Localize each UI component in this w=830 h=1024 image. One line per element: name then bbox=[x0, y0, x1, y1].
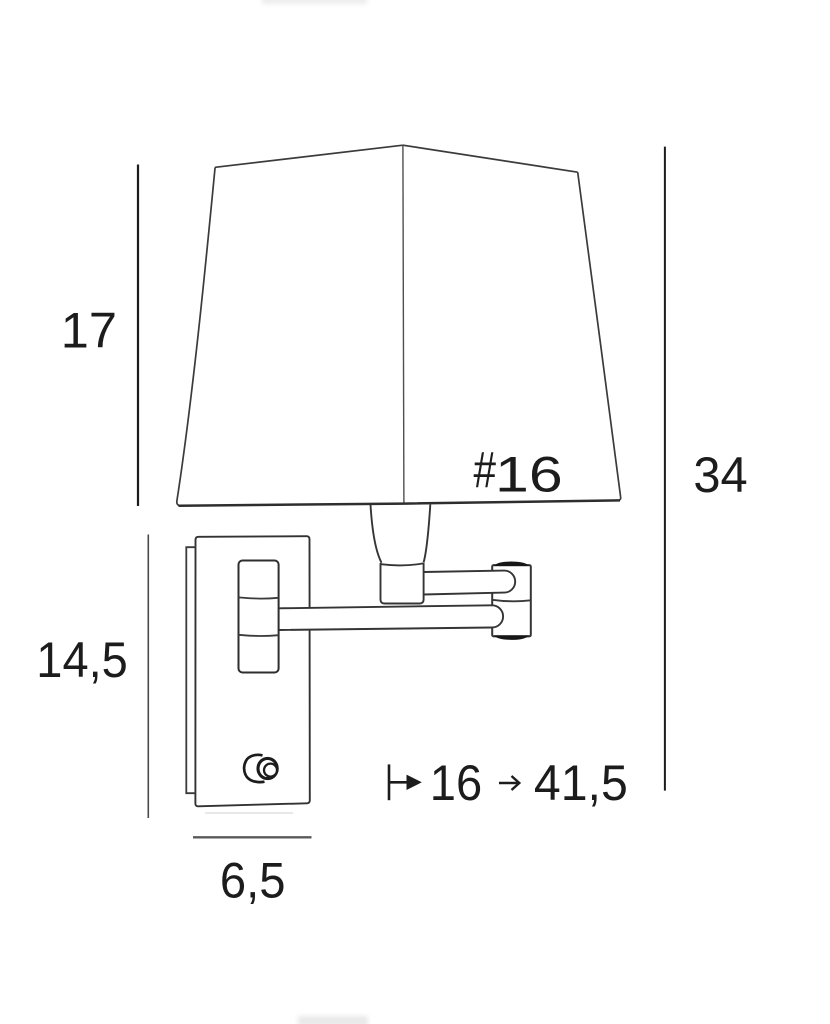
svg-text:17: 17 bbox=[61, 303, 117, 359]
svg-text:#: # bbox=[474, 441, 497, 498]
svg-text:16: 16 bbox=[430, 755, 482, 811]
svg-text:6,5: 6,5 bbox=[220, 852, 286, 908]
svg-text:14,5: 14,5 bbox=[36, 632, 128, 688]
svg-text:34: 34 bbox=[693, 447, 747, 503]
svg-text:41,5: 41,5 bbox=[534, 755, 628, 811]
svg-text:16: 16 bbox=[495, 447, 563, 503]
